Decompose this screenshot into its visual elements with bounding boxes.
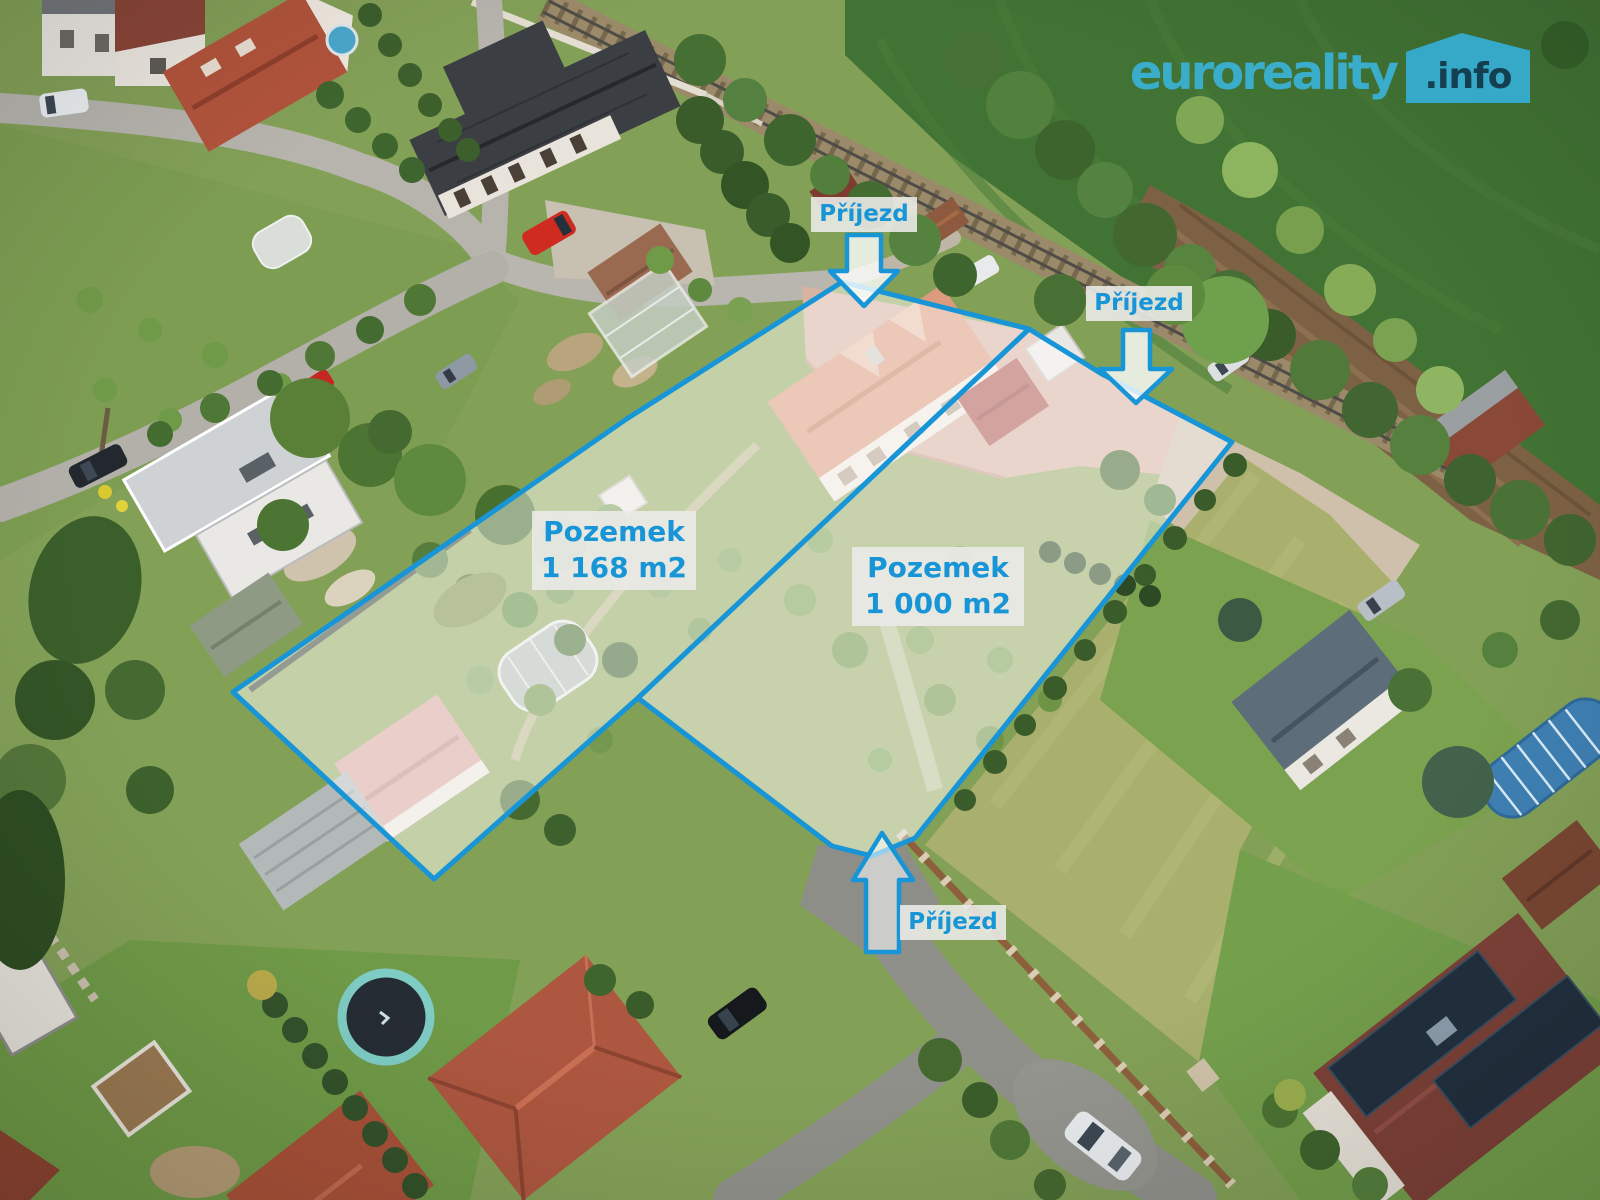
plot-1-area: 1 168 m2: [532, 550, 696, 586]
annotation-overlay: [0, 0, 1600, 1200]
plot-2-area: 1 000 m2: [852, 586, 1024, 622]
access-label-top: Příjezd: [811, 197, 917, 232]
watermark-brand-text: euroreality: [1130, 49, 1396, 97]
watermark-badge-text: .info: [1424, 59, 1511, 95]
plot-1-label: Pozemek 1 168 m2: [532, 511, 696, 590]
plot-2-name: Pozemek: [852, 550, 1024, 586]
access-label-right: Příjezd: [1086, 286, 1192, 321]
aerial-photo: Pozemek 1 168 m2 Pozemek 1 000 m2 Příjez…: [0, 0, 1600, 1200]
access-label-bottom: Příjezd: [900, 905, 1006, 940]
house-badge-icon: .info: [1406, 33, 1530, 103]
plot-2-label: Pozemek 1 000 m2: [852, 547, 1024, 626]
watermark-logo: euroreality .info: [1130, 33, 1530, 103]
plot-1-name: Pozemek: [532, 514, 696, 550]
